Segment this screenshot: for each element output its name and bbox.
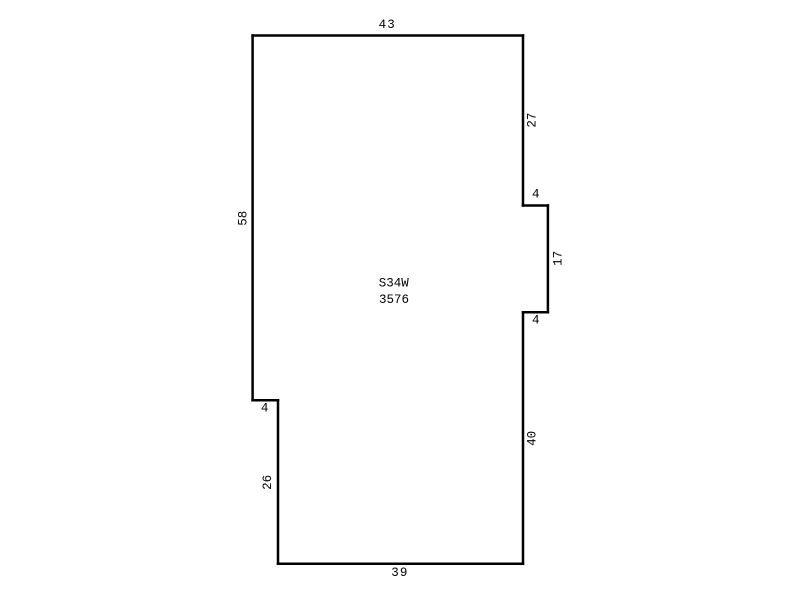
svg-text:40: 40: [526, 431, 540, 446]
svg-text:39: 39: [391, 566, 408, 580]
svg-text:4: 4: [261, 402, 269, 416]
svg-text:43: 43: [379, 18, 396, 32]
svg-text:4: 4: [532, 314, 540, 328]
svg-text:3576: 3576: [379, 293, 409, 307]
svg-text:26: 26: [261, 475, 275, 490]
svg-text:4: 4: [532, 188, 540, 202]
svg-text:58: 58: [236, 211, 250, 226]
svg-text:27: 27: [526, 113, 540, 128]
svg-text:S34W: S34W: [379, 277, 410, 291]
svg-text:17: 17: [551, 251, 565, 266]
